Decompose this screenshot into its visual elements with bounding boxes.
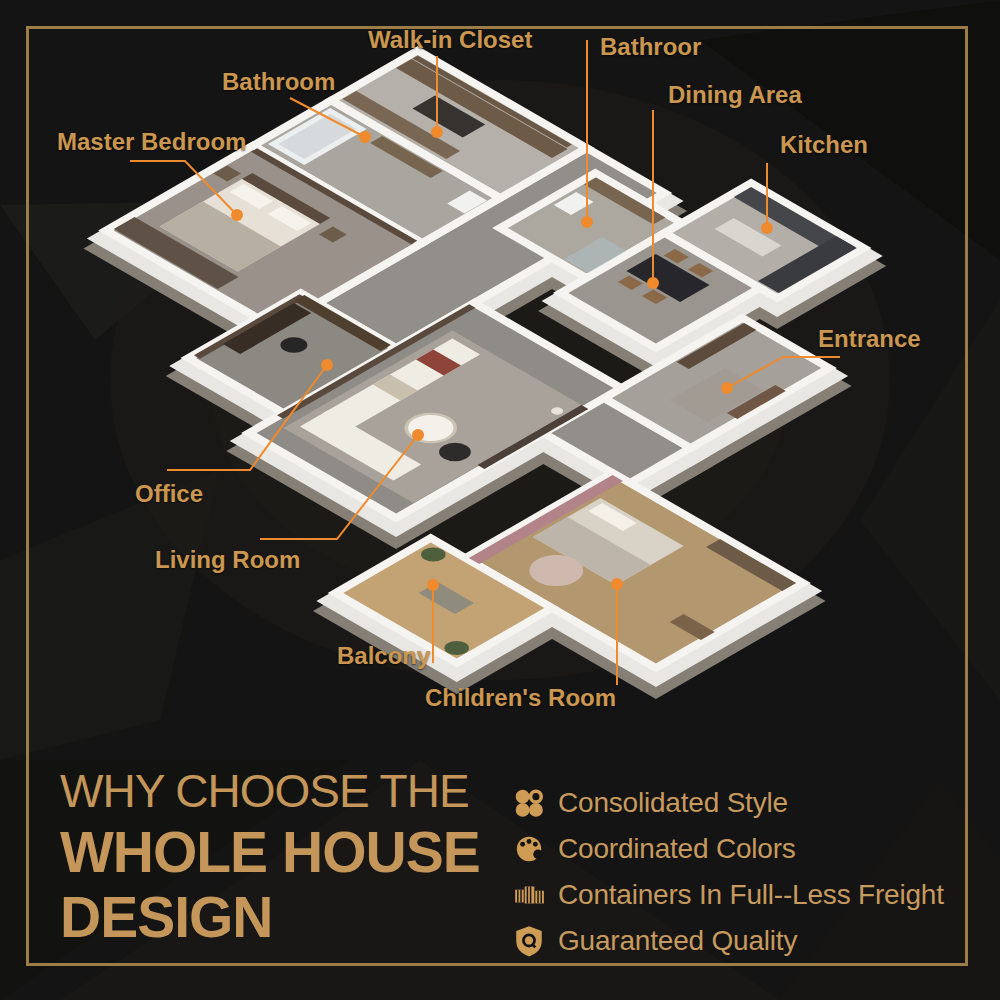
feature-consolidated-style: Consolidated Style: [512, 780, 944, 826]
leader-childrens-room: [611, 578, 623, 685]
label-walk-in-closet: Walk-in Closet: [368, 26, 532, 54]
leader-office: [167, 359, 333, 470]
label-office: Office: [135, 480, 203, 508]
label-kitchen: Kitchen: [780, 131, 868, 159]
feature-containers: Containers In Full--Less Freight: [512, 872, 944, 918]
feature-label: Consolidated Style: [558, 787, 788, 819]
shield-icon: [512, 924, 546, 958]
heading-line-2: WHOLE HOUSE: [60, 824, 480, 881]
heading-line-3: DESIGN: [60, 889, 480, 946]
leader-dining-area: [647, 110, 659, 289]
leader-bathroom: [290, 98, 371, 143]
feature-list: Consolidated Style Containers In Full--L…: [512, 780, 944, 964]
heading-line-1: WHY CHOOSE THE: [60, 768, 480, 814]
feature-label: Containers In Full--Less Freight: [558, 879, 944, 911]
leader-kitchen: [761, 163, 773, 234]
leader-lines: [0, 0, 1000, 760]
leader-entrance: [721, 357, 840, 394]
main-heading: WHY CHOOSE THE WHOLE HOUSE DESIGN: [60, 768, 480, 946]
poster: Master Bedroom Bathroom Walk-in Closet B…: [0, 0, 1000, 1000]
label-bathroom: Bathroom: [222, 68, 335, 96]
feature-guaranteed-quality: Guaranteed Quality: [512, 918, 944, 964]
label-master-bedroom: Master Bedroom: [57, 128, 246, 156]
label-dining-area: Dining Area: [668, 81, 802, 109]
label-entrance: Entrance: [818, 325, 921, 353]
leader-bathroom-2: [581, 40, 593, 228]
label-balcony: Balcony: [337, 642, 430, 670]
label-bathroom-2: Bathroor: [600, 33, 701, 61]
leader-living-room: [260, 429, 424, 539]
palette-icon: [512, 832, 546, 866]
containers-icon: [512, 878, 546, 912]
label-childrens-room: Children's Room: [425, 684, 616, 712]
feature-label: Guaranteed Quality: [558, 925, 797, 957]
leader-walk-in-closet: [431, 56, 443, 138]
clover-icon: [512, 786, 546, 820]
label-living-room: Living Room: [155, 546, 300, 574]
feature-label: Coordinated Colors: [558, 833, 796, 865]
leader-master-bedroom: [130, 161, 243, 221]
feature-coordinated-colors: Containers In Full--Less Freight Coordin…: [512, 826, 944, 872]
